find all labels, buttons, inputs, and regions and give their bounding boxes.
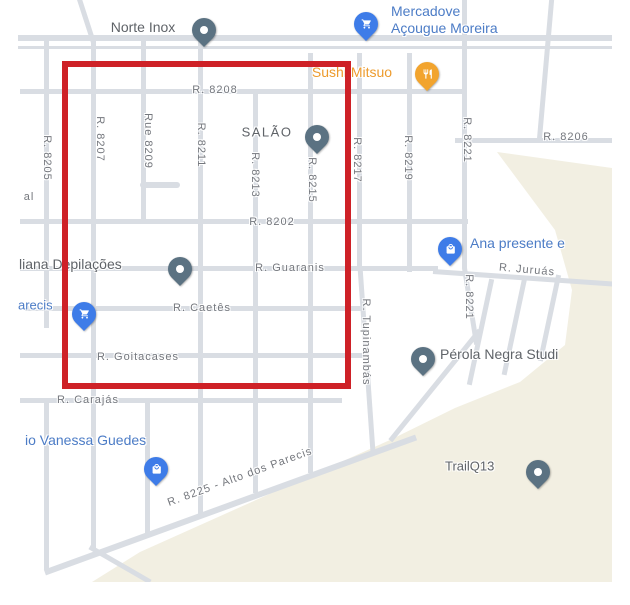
map-margin-left [0,0,18,605]
trailq13-pin[interactable] [526,460,550,484]
place-dot-icon [200,26,208,34]
sushi-mitsuo-pin[interactable] [415,62,439,86]
poi-label-ana-presente[interactable]: Ana presente e [470,235,565,251]
street-label-carajas: R. Carajás [57,394,119,406]
place-dot-icon [419,355,427,363]
road-topright [537,0,555,142]
street-label-r8217: R. 8217 [351,137,363,183]
place-dot-icon [534,468,542,476]
map-margin-right [612,0,630,605]
road-top-minor [18,46,612,49]
poi-label-vanessa-guedes[interactable]: io Vanessa Guedes [25,432,146,448]
road-top-major [18,35,612,41]
shopping-bag-icon [151,464,162,475]
street-label-r8221-north: R. 8221 [461,117,473,163]
perola-negra-pin[interactable] [411,347,435,371]
restaurant-icon [422,69,433,80]
mercadove-pin[interactable] [354,12,378,36]
poi-label-norte-inox[interactable]: Norte Inox [111,19,176,35]
street-label-r8219: R. 8219 [402,135,414,181]
map-margin-bottom [0,582,630,605]
ana-presente-pin[interactable] [438,237,462,261]
road-r8205-south [44,398,49,570]
street-label-tupinambas: R. Tupinambás [360,299,372,386]
vanessa-guedes-pin[interactable] [144,457,168,481]
street-label-r8221-south: R. 8221 [463,274,475,320]
street-label-r8205: R. 8205 [41,135,53,181]
poi-label-perola-negra[interactable]: Pérola Negra Studi [440,346,558,362]
map-canvas[interactable]: R. 8208 R. 8205 R. 8207 Rue 8209 R. 8211… [0,0,630,605]
shopping-cart-icon [361,19,372,30]
annotation-rectangle [62,61,351,389]
street-label-fragment: al [24,191,35,203]
poi-label-mercadove[interactable]: Mercadove Açougue Moreira [391,3,498,37]
norte-inox-pin[interactable] [192,18,216,42]
road-r8205 [44,36,49,328]
poi-label-parecis[interactable]: arecis [18,298,53,313]
poi-label-trailq13[interactable]: TrailQ13 [445,459,494,474]
street-label-r8206: R. 8206 [543,131,589,143]
shopping-bag-icon [445,244,456,255]
